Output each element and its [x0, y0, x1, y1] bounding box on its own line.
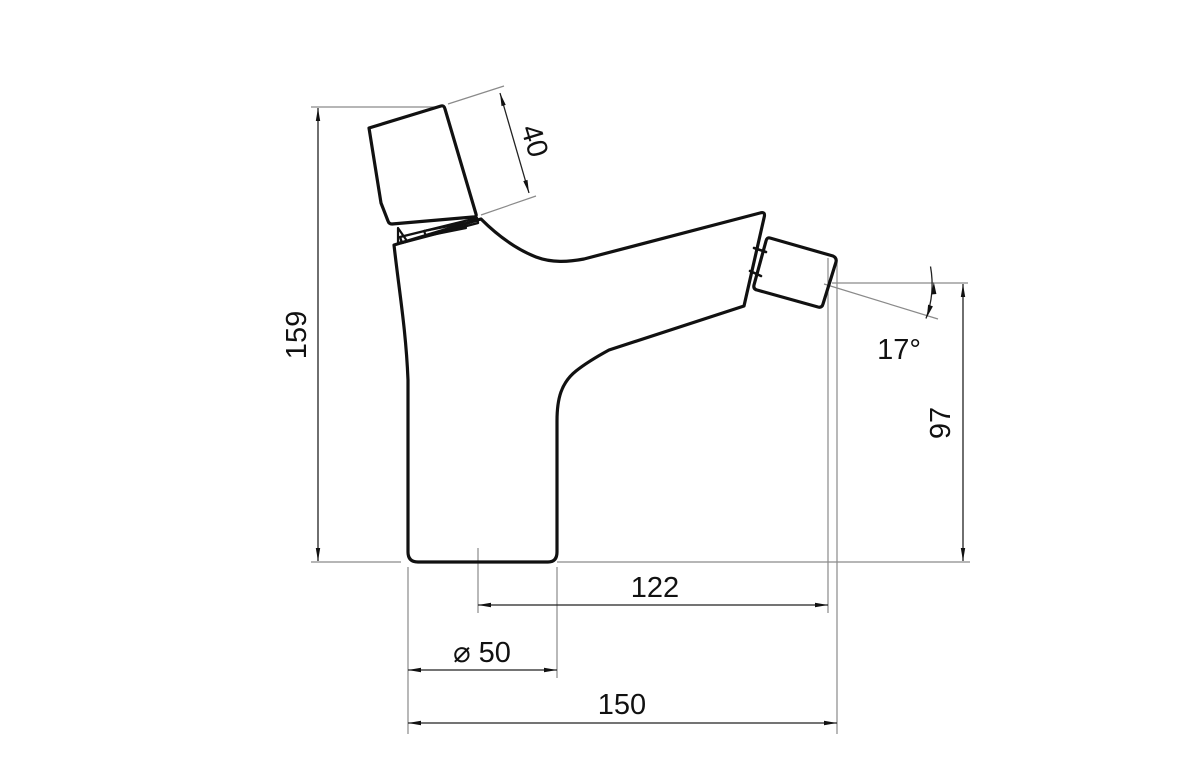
- faucet-body: [394, 213, 765, 562]
- extension-lines: [311, 86, 970, 734]
- faucet-outline: [369, 106, 836, 562]
- label-outlet-height: 97: [925, 407, 957, 439]
- label-total-height: 159: [281, 311, 313, 359]
- angle-arrow-bottom: [927, 305, 933, 318]
- faucet-technical-drawing: 159 40 17° 97 122 ⌀ 50 150: [0, 0, 1200, 784]
- extension-line-handle-top: [448, 86, 504, 104]
- label-base-diameter: ⌀ 50: [453, 637, 511, 669]
- nozzle: [754, 238, 836, 307]
- label-outlet-reach: 122: [631, 572, 679, 604]
- label-total-depth: 150: [598, 689, 646, 721]
- angle-reference-slanted: [824, 284, 938, 319]
- label-outlet-angle: 17°: [877, 334, 921, 366]
- label-handle-length: 40: [514, 121, 554, 161]
- faucet-handle: [369, 106, 476, 224]
- extension-line-handle-bottom: [481, 196, 536, 215]
- dimension-lines: [318, 93, 963, 723]
- drawing-canvas: 159 40 17° 97 122 ⌀ 50 150: [0, 0, 1200, 784]
